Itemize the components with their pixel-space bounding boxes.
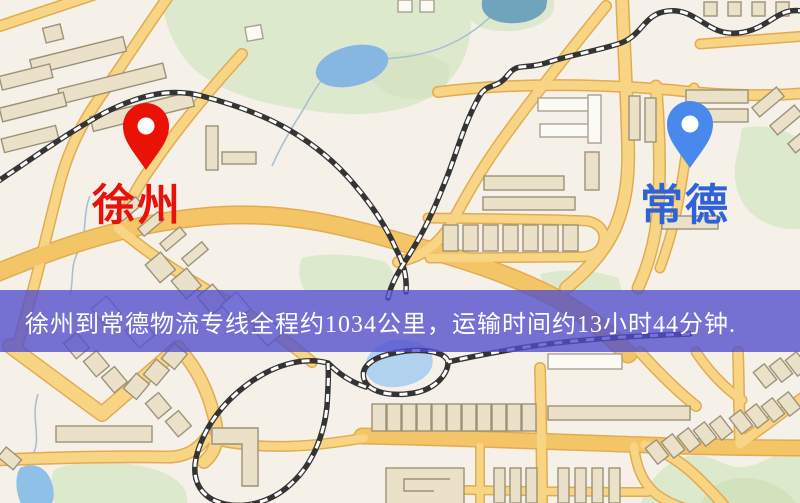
pin-hole xyxy=(682,116,699,133)
origin-city-label: 徐州 xyxy=(91,182,182,230)
route-info-text: 徐州到常德物流专线全程约1034公里，运输时间约13小时44分钟. xyxy=(25,304,736,339)
logistics-route-map: 徐州 常德 徐州到常德物流专线全程约1034公里，运输时间约13小时44分钟. xyxy=(0,0,800,503)
map-image: 徐州 常德 xyxy=(0,0,800,503)
destination-city-label: 常德 xyxy=(640,182,730,230)
route-info-banner: 徐州到常德物流专线全程约1034公里，运输时间约13小时44分钟. xyxy=(0,290,800,352)
pin-hole xyxy=(138,118,155,135)
